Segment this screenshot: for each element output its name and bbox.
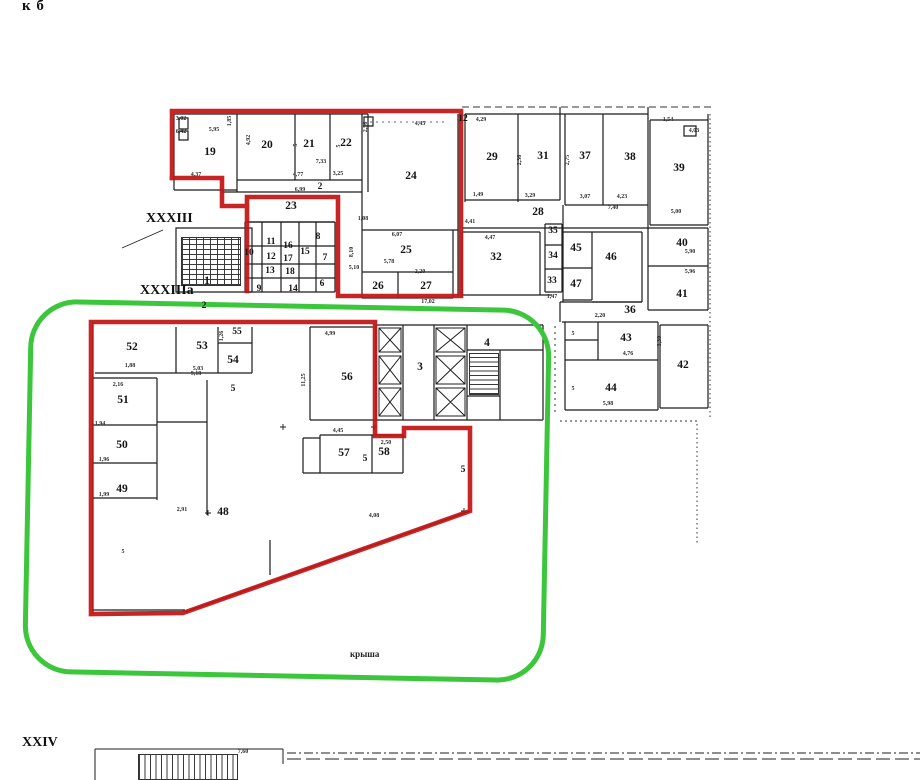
corner-note: к б bbox=[22, 0, 45, 15]
stairwell-hatch-upper bbox=[181, 237, 241, 286]
axis-label-xxxiiia: XXXIIIa bbox=[140, 283, 194, 299]
axis-label-xxiv: XXIV bbox=[22, 735, 58, 751]
dashed-outlines bbox=[370, 107, 712, 545]
red-highlight-outlines bbox=[91, 111, 470, 614]
floor-plan-scan: к б XXXIII XXXIIIa XXIV крыша 1920212224… bbox=[0, 0, 922, 780]
red-outline-lower-premises bbox=[91, 322, 470, 614]
floorplan-linework bbox=[0, 0, 922, 780]
elevator-shafts bbox=[379, 328, 465, 416]
stairwell-hatch-core bbox=[469, 353, 499, 395]
roof-label: крыша bbox=[350, 649, 379, 659]
stairwell-hatch-bottom bbox=[138, 754, 238, 780]
axis-label-xxxiii: XXXIII bbox=[146, 211, 193, 227]
